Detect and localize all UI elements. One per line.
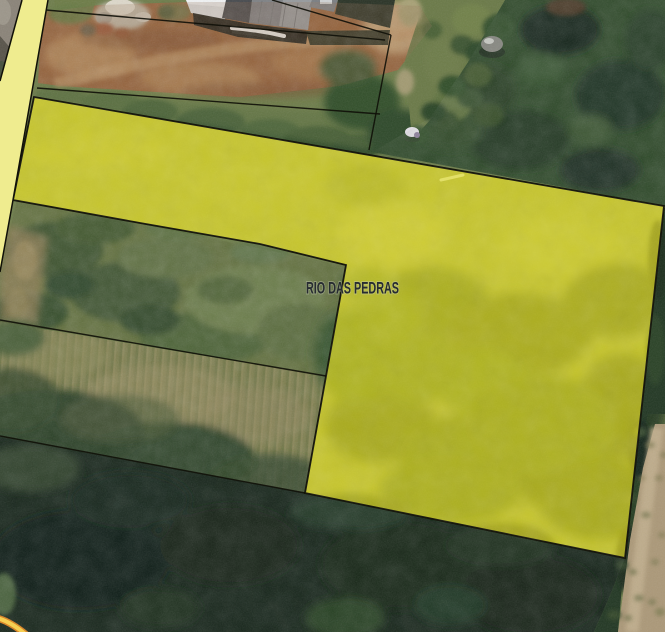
- svg-text:RIO DAS PEDRAS: RIO DAS PEDRAS: [306, 280, 399, 298]
